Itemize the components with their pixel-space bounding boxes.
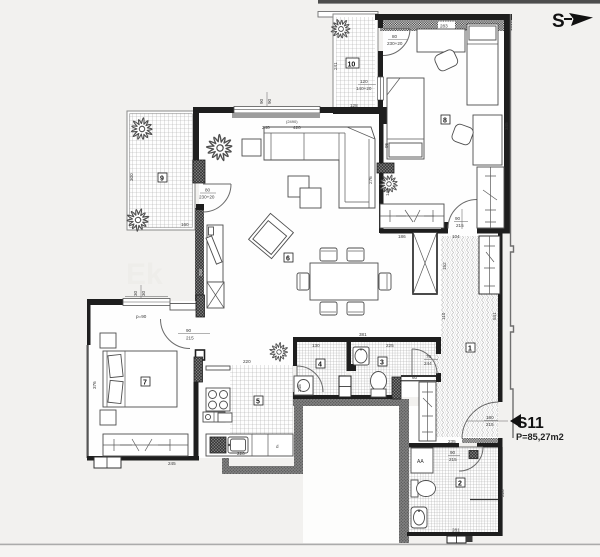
svg-text:128: 128 xyxy=(350,103,358,108)
svg-text:160: 160 xyxy=(181,222,189,227)
svg-text:90: 90 xyxy=(259,98,264,104)
svg-text:AA: AA xyxy=(417,459,424,465)
svg-text:215: 215 xyxy=(449,457,457,462)
svg-text:90: 90 xyxy=(267,98,272,104)
svg-text:235: 235 xyxy=(448,439,456,444)
svg-text:130: 130 xyxy=(312,343,320,348)
svg-text:245: 245 xyxy=(168,461,176,466)
svg-text:140+20: 140+20 xyxy=(356,86,372,91)
svg-text:80: 80 xyxy=(392,34,398,39)
svg-text:240: 240 xyxy=(262,125,270,130)
svg-text:300: 300 xyxy=(129,173,134,181)
svg-text:248: 248 xyxy=(297,384,302,392)
svg-text:230+20: 230+20 xyxy=(199,195,215,200)
svg-text:95: 95 xyxy=(384,142,389,148)
svg-text:S: S xyxy=(552,11,565,32)
svg-text:70: 70 xyxy=(426,354,432,359)
svg-text:110: 110 xyxy=(441,312,446,320)
svg-text:8: 8 xyxy=(443,118,447,125)
svg-text:220: 220 xyxy=(500,489,505,497)
svg-text:215: 215 xyxy=(186,336,194,341)
svg-text:P=85,27m2: P=85,27m2 xyxy=(516,432,564,442)
svg-text:345: 345 xyxy=(504,122,509,130)
svg-text:90: 90 xyxy=(450,450,456,455)
svg-text:180: 180 xyxy=(486,415,494,420)
svg-text:225: 225 xyxy=(386,343,394,348)
svg-text:186: 186 xyxy=(398,234,406,239)
svg-text:7: 7 xyxy=(143,380,147,387)
svg-text:220: 220 xyxy=(237,451,245,456)
svg-text:244: 244 xyxy=(424,361,432,366)
svg-text:30: 30 xyxy=(133,290,138,296)
svg-text:p=90: p=90 xyxy=(136,314,147,319)
svg-text:215: 215 xyxy=(456,223,464,228)
svg-text:241: 241 xyxy=(333,62,338,70)
svg-text:104: 104 xyxy=(452,234,460,239)
svg-text:3: 3 xyxy=(380,360,384,367)
svg-text:215: 215 xyxy=(486,422,494,427)
svg-text:S11: S11 xyxy=(517,415,544,432)
svg-text:152: 152 xyxy=(442,262,447,270)
svg-text:120: 120 xyxy=(360,79,368,84)
svg-text:381: 381 xyxy=(359,332,367,337)
svg-text:281: 281 xyxy=(452,528,460,533)
svg-text:90: 90 xyxy=(186,328,192,333)
svg-text:376: 376 xyxy=(92,381,97,389)
svg-text:276: 276 xyxy=(368,176,373,184)
svg-text:230+20: 230+20 xyxy=(387,41,403,46)
svg-text:(2490): (2490) xyxy=(286,119,298,124)
svg-text:420: 420 xyxy=(293,125,301,130)
svg-text:250: 250 xyxy=(198,268,203,276)
svg-text:30: 30 xyxy=(141,290,146,296)
svg-text:10: 10 xyxy=(348,62,356,69)
svg-text:283: 283 xyxy=(440,24,448,29)
svg-text:4: 4 xyxy=(318,362,322,369)
svg-text:90: 90 xyxy=(455,216,461,221)
svg-text:1: 1 xyxy=(468,346,472,353)
svg-text:220: 220 xyxy=(243,359,251,364)
svg-text:5: 5 xyxy=(256,399,260,406)
svg-text:148: 148 xyxy=(385,188,390,196)
svg-text:6: 6 xyxy=(286,256,290,263)
svg-text:9: 9 xyxy=(160,176,164,183)
svg-text:Ek: Ek xyxy=(126,258,163,291)
svg-text:541: 541 xyxy=(492,312,497,320)
svg-text:2: 2 xyxy=(458,481,462,488)
svg-text:80: 80 xyxy=(205,188,211,193)
svg-text:60: 60 xyxy=(412,375,418,380)
